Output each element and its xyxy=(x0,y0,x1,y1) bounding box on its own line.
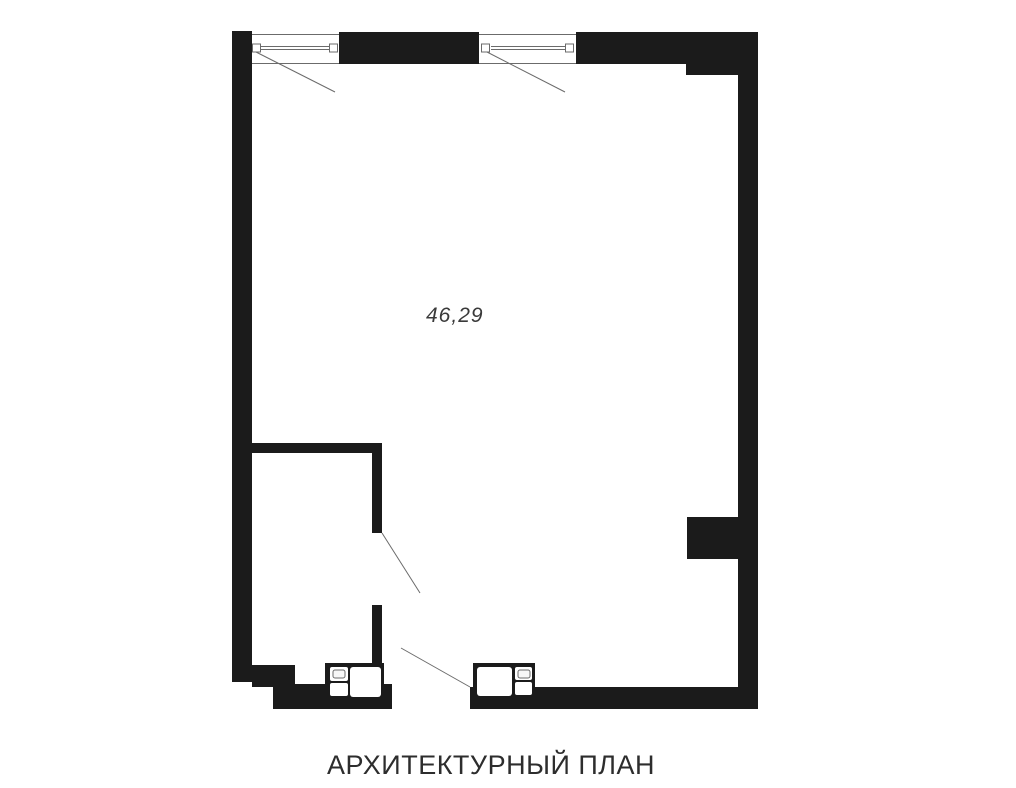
partition-wall-upper xyxy=(372,443,382,533)
window-2-hinge-left xyxy=(482,44,490,52)
floor-plan-drawing xyxy=(0,0,1016,788)
fixture-right-small-bottom-box xyxy=(515,682,532,695)
partition-wall-horizontal xyxy=(252,443,382,453)
plan-title: АРХИТЕКТУРНЫЙ ПЛАН xyxy=(327,750,655,781)
entry-door-swing-line xyxy=(401,648,470,687)
fixture-right-inset xyxy=(518,670,530,678)
window-2-swing-line xyxy=(487,52,565,92)
window-1-hinge-right xyxy=(330,44,338,52)
wall-right xyxy=(738,32,758,709)
wall-right-pilaster xyxy=(687,517,738,559)
wall-fixture-left-icon xyxy=(325,663,384,701)
fixture-left-small-bottom-box xyxy=(330,683,348,696)
floor-plan-page: 46,29 АРХИТЕКТУРНЫЙ ПЛАН xyxy=(0,0,1016,788)
wall-top-middle xyxy=(339,32,479,64)
wall-bottom-left-step xyxy=(252,665,295,687)
partition-wall-lower xyxy=(372,605,382,665)
fixture-right-large-box xyxy=(477,667,512,696)
window-2-hinge-right xyxy=(566,44,574,52)
room-area-label: 46,29 xyxy=(426,304,484,328)
window-2-icon xyxy=(479,35,576,93)
window-1-icon xyxy=(252,35,339,93)
wall-left xyxy=(232,31,252,682)
wall-fixture-right-icon xyxy=(473,663,535,701)
window-1-hinge-left xyxy=(253,44,261,52)
fixture-left-large-box xyxy=(350,667,381,697)
partition-door-swing-line xyxy=(382,533,420,593)
window-1-swing-line xyxy=(256,52,335,92)
fixture-left-inset xyxy=(333,670,345,678)
walls xyxy=(232,31,758,709)
